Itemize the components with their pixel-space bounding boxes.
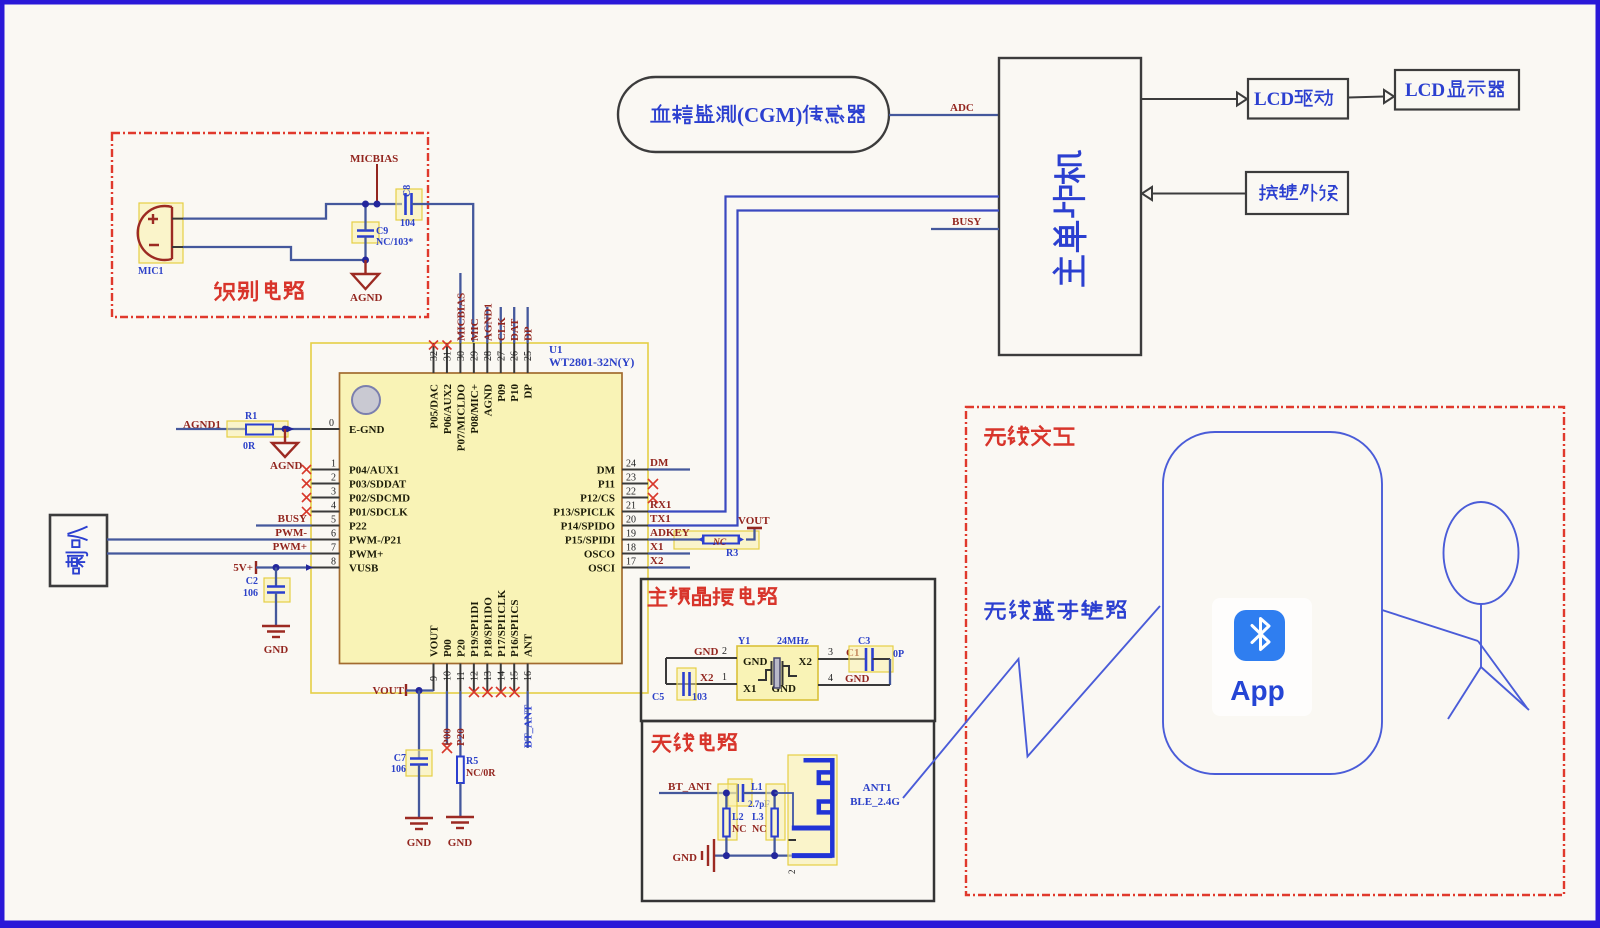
svg-text:R3: R3: [726, 548, 738, 559]
svg-text:9: 9: [429, 676, 440, 681]
svg-text:GND: GND: [448, 837, 473, 849]
svg-text:GND: GND: [407, 837, 432, 849]
svg-text:LCD: LCD: [1405, 80, 1445, 101]
svg-text:5: 5: [331, 515, 336, 526]
svg-text:10: 10: [442, 671, 453, 681]
svg-text:GND: GND: [743, 656, 768, 668]
svg-text:AGND: AGND: [350, 292, 382, 304]
svg-text:NC: NC: [712, 538, 727, 548]
svg-text:X2: X2: [799, 656, 813, 668]
svg-text:22: 22: [626, 487, 636, 498]
svg-text:25: 25: [523, 351, 534, 361]
svg-text:103: 103: [692, 692, 707, 703]
svg-text:PWM+: PWM+: [349, 549, 383, 561]
svg-text:DM: DM: [650, 457, 669, 469]
svg-text:P18/SPI1DO: P18/SPI1DO: [482, 597, 494, 657]
svg-text:106: 106: [243, 588, 258, 599]
svg-text:PWM-: PWM-: [275, 527, 307, 539]
svg-text:VOUT: VOUT: [738, 515, 770, 527]
svg-text:P01/SDCLK: P01/SDCLK: [349, 507, 408, 519]
svg-text:24: 24: [626, 459, 636, 470]
svg-text:6: 6: [331, 529, 336, 540]
svg-text:WT2801-32N(Y): WT2801-32N(Y): [549, 355, 634, 369]
svg-text:GND: GND: [845, 673, 870, 685]
svg-text:106: 106: [391, 764, 406, 775]
svg-text:1: 1: [331, 459, 336, 470]
svg-text:20: 20: [626, 515, 636, 526]
svg-text:0P: 0P: [893, 649, 904, 660]
svg-text:NC/103*: NC/103*: [376, 237, 413, 248]
svg-text:C2: C2: [246, 576, 258, 587]
svg-text:NC/0R: NC/0R: [466, 768, 496, 779]
svg-text:GND: GND: [694, 646, 719, 658]
svg-text:8: 8: [331, 557, 336, 568]
svg-text:28: 28: [483, 351, 494, 361]
svg-text:14: 14: [496, 671, 507, 681]
svg-text:AGND1: AGND1: [482, 303, 494, 341]
svg-text:E-GND: E-GND: [349, 424, 385, 436]
svg-text:2: 2: [787, 870, 797, 875]
svg-text:P08/MIC+: P08/MIC+: [469, 384, 481, 434]
svg-text:GND: GND: [673, 852, 698, 864]
svg-text:ADC: ADC: [950, 102, 974, 114]
svg-text:R5: R5: [466, 756, 478, 767]
svg-text:18: 18: [626, 543, 636, 554]
svg-text:BUSY: BUSY: [278, 513, 307, 525]
svg-text:CLK: CLK: [496, 317, 508, 341]
svg-text:P20: P20: [455, 639, 467, 657]
svg-text:5V+: 5V+: [233, 562, 253, 574]
svg-text:DP: DP: [523, 326, 535, 341]
svg-text:GND: GND: [264, 644, 289, 656]
svg-text:2: 2: [331, 473, 336, 484]
svg-text:1: 1: [722, 672, 727, 683]
svg-text:21: 21: [626, 501, 636, 512]
svg-text:P07/MICLDO: P07/MICLDO: [455, 384, 467, 452]
svg-text:DM: DM: [597, 465, 616, 477]
svg-text:31: 31: [442, 351, 453, 361]
svg-text:26: 26: [510, 351, 521, 361]
svg-text:(CGM): (CGM): [737, 103, 802, 127]
svg-text:VOUT: VOUT: [372, 685, 404, 697]
svg-text:X2: X2: [650, 555, 664, 567]
svg-text:L2: L2: [732, 812, 744, 823]
svg-text:P15/SPIDI: P15/SPIDI: [565, 535, 615, 547]
svg-text:P13/SPICLK: P13/SPICLK: [553, 507, 615, 519]
svg-text:LCD: LCD: [1254, 89, 1294, 110]
svg-text:DAT: DAT: [509, 318, 521, 341]
svg-text:P03/SDDAT: P03/SDDAT: [349, 479, 407, 491]
svg-text:ANT: ANT: [523, 633, 535, 657]
svg-text:AGND: AGND: [482, 384, 494, 416]
svg-text:L1: L1: [751, 782, 763, 793]
svg-text:P22: P22: [349, 521, 367, 533]
svg-text:16: 16: [523, 671, 534, 681]
svg-text:NC: NC: [752, 824, 766, 835]
svg-text:P17/SPI1CLK: P17/SPI1CLK: [496, 589, 508, 657]
svg-text:P09: P09: [496, 384, 508, 402]
svg-text:19: 19: [626, 529, 636, 540]
svg-text:P14/SPIDO: P14/SPIDO: [561, 521, 616, 533]
svg-text:29: 29: [469, 351, 480, 361]
svg-text:C3: C3: [858, 636, 870, 647]
svg-text:C9: C9: [376, 226, 388, 237]
svg-text:L3: L3: [752, 812, 764, 823]
svg-text:P10: P10: [509, 384, 521, 402]
svg-text:15: 15: [510, 671, 521, 681]
svg-text:App: App: [1230, 675, 1284, 706]
svg-text:P06/AUX2: P06/AUX2: [442, 384, 454, 435]
svg-text:C8: C8: [402, 185, 413, 197]
svg-text:P00: P00: [442, 639, 454, 657]
svg-text:X1: X1: [650, 541, 663, 553]
svg-text:BLE_2.4G: BLE_2.4G: [850, 796, 900, 808]
svg-text:PWM+: PWM+: [273, 541, 307, 553]
svg-text:OSCI: OSCI: [588, 563, 615, 575]
svg-text:17: 17: [626, 557, 636, 568]
svg-text:P16/SPI1CS: P16/SPI1CS: [509, 600, 521, 657]
svg-text:32: 32: [429, 351, 440, 361]
svg-text:BUSY: BUSY: [952, 216, 981, 228]
svg-text:ADKEY: ADKEY: [650, 527, 690, 539]
svg-text:C7: C7: [394, 753, 406, 764]
svg-text:MICBIAS: MICBIAS: [455, 293, 467, 341]
svg-text:R1: R1: [245, 411, 257, 422]
svg-text:VUSB: VUSB: [349, 563, 379, 575]
svg-text:12: 12: [469, 671, 480, 681]
svg-text:P11: P11: [598, 479, 615, 491]
svg-text:RX1: RX1: [650, 499, 671, 511]
svg-text:P19/SPI1DI: P19/SPI1DI: [469, 601, 481, 657]
svg-text:BT_ANT: BT_ANT: [668, 781, 712, 793]
svg-text:AGND: AGND: [270, 460, 302, 472]
svg-text:27: 27: [496, 351, 507, 361]
svg-text:P02/SDCMD: P02/SDCMD: [349, 493, 410, 505]
svg-text:23: 23: [626, 473, 636, 484]
svg-text:2: 2: [722, 646, 727, 657]
svg-text:3: 3: [331, 487, 336, 498]
svg-text:PWM-/P21: PWM-/P21: [349, 535, 402, 547]
svg-text:P04/AUX1: P04/AUX1: [349, 465, 399, 477]
svg-text:OSCO: OSCO: [584, 549, 616, 561]
svg-text:X2: X2: [700, 672, 714, 684]
svg-text:P12/CS: P12/CS: [580, 493, 615, 505]
svg-text:104: 104: [400, 218, 415, 229]
svg-text:MICBIAS: MICBIAS: [350, 153, 398, 165]
svg-text:7: 7: [331, 543, 336, 554]
svg-text:TX1: TX1: [650, 513, 671, 525]
svg-text:ANT1: ANT1: [863, 782, 892, 794]
svg-text:13: 13: [483, 671, 494, 681]
svg-text:30: 30: [456, 351, 467, 361]
svg-text:MIC1: MIC1: [138, 266, 164, 277]
svg-text:4: 4: [828, 673, 833, 684]
svg-text:0R: 0R: [243, 441, 256, 452]
svg-text:4: 4: [331, 501, 336, 512]
svg-text:C5: C5: [652, 692, 664, 703]
svg-text:VOUT: VOUT: [429, 625, 441, 657]
svg-text:X1: X1: [743, 683, 756, 695]
svg-text:NC: NC: [732, 824, 746, 835]
svg-text:DP: DP: [523, 384, 535, 399]
svg-text:11: 11: [456, 671, 467, 681]
svg-text:MIC: MIC: [469, 318, 481, 341]
svg-text:P20: P20: [455, 728, 467, 746]
svg-text:3: 3: [828, 647, 833, 658]
svg-text:0: 0: [329, 418, 334, 429]
svg-text:BT_ANT: BT_ANT: [523, 704, 535, 748]
svg-text:P05/DAC: P05/DAC: [429, 384, 441, 429]
